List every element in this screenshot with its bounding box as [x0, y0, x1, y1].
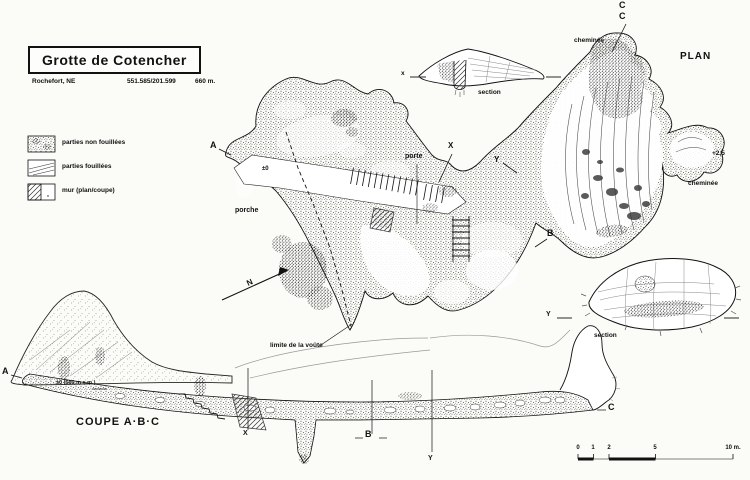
legend-label-unexcavated: parties non fouillées: [62, 140, 125, 147]
chimney-top-label: cheminée: [574, 38, 604, 45]
legend-swatches: [28, 136, 55, 200]
section-bottom-drawing: [557, 259, 741, 336]
coupe-title: COUPE A·B·C: [76, 417, 160, 428]
legend-swatch-unexcavated: [28, 136, 55, 152]
coordinates-label: 551.585/201.599: [127, 79, 176, 86]
porch-label: porche: [235, 207, 258, 214]
door-label: porte: [405, 153, 423, 160]
coupe-point-b: B: [365, 430, 372, 439]
section-top-fringe: [455, 90, 464, 97]
plan-point-y: Y: [494, 156, 499, 164]
coupe-drawing: [11, 291, 620, 464]
cave-survey-sheet: Grotte de Cotencher Rochefort, NE 551.58…: [0, 0, 750, 480]
coupe-point-y: Y: [428, 455, 433, 462]
plan-wall-hatch: [370, 208, 394, 232]
plan-point-b: B: [547, 229, 554, 238]
scale-end-label: 10 m.: [725, 445, 740, 451]
coupe-left-mass: [11, 291, 232, 385]
coupe-datum: ±0 (660 m s.m.): [56, 381, 95, 387]
section-bottom-mark: Y: [546, 311, 551, 318]
plan-point-x: X: [448, 142, 453, 150]
plan-datum: ±0: [262, 166, 269, 172]
section-top-caption: section: [478, 90, 501, 97]
coupe-point-a: A: [2, 367, 9, 376]
scale-tick-5: 5: [653, 445, 656, 451]
scale-tick-1: 1: [591, 445, 594, 451]
coupe-point-c: C: [608, 403, 615, 412]
floor-patch: [274, 101, 306, 119]
plan-caption: PLAN: [680, 52, 711, 62]
north-arrow: [222, 267, 289, 300]
legend-label-wall: mur (plan/coupe): [62, 188, 115, 195]
plan-point-c2: C: [619, 12, 626, 21]
vault-limit-label: limite de la voûte: [270, 343, 323, 350]
map-title: Grotte de Cotencher: [42, 52, 187, 68]
scale-tick-2: 2: [607, 445, 610, 451]
plan-point-c1: C: [619, 1, 626, 10]
legend-label-excavated: parties fouillées: [62, 164, 112, 171]
floor-patch: [434, 280, 470, 304]
chimney-right-label: cheminée: [688, 181, 718, 188]
altitude-label: 660 m.: [195, 79, 215, 86]
coupe-point-x: X: [243, 430, 248, 437]
scale-tick-0: 0: [576, 445, 579, 451]
locality-label: Rochefort, NE: [32, 79, 75, 86]
floor-patch: [462, 222, 522, 258]
elevation-label: +2,5: [712, 151, 725, 158]
scale-bar: [578, 454, 733, 461]
plan-point-a: A: [210, 141, 217, 150]
floor-patch: [338, 142, 366, 158]
title-box: Grotte de Cotencher: [28, 46, 201, 74]
section-bottom-caption: section: [594, 333, 617, 340]
coupe-terrain-lines: [235, 330, 570, 378]
section-top-mark: x: [401, 71, 405, 78]
